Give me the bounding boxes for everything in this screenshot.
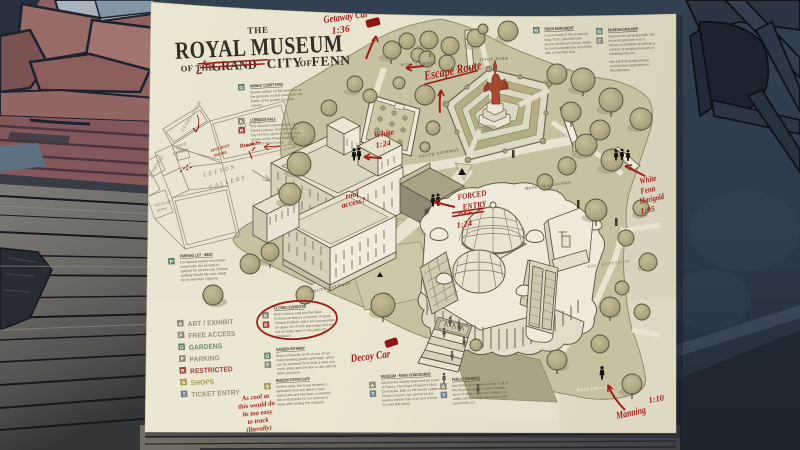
svg-text:A: A: [239, 119, 243, 125]
svg-text:T: T: [442, 393, 445, 399]
svg-text:G: G: [239, 85, 243, 91]
svg-text:R: R: [240, 128, 244, 134]
svg-text:F: F: [598, 39, 601, 45]
svg-text:A: A: [441, 384, 445, 390]
svg-text:T: T: [182, 392, 185, 398]
svg-text:CITY: CITY: [266, 55, 303, 72]
svg-text:G: G: [597, 29, 601, 35]
svg-text:T: T: [371, 392, 374, 398]
svg-text:FENN: FENN: [311, 52, 351, 69]
svg-text:crowds.: crowds.: [251, 103, 263, 108]
svg-text:R: R: [264, 323, 268, 329]
svg-text:F: F: [179, 333, 182, 339]
svg-text:G: G: [180, 345, 184, 351]
svg-text:SHOPS: SHOPS: [191, 379, 215, 388]
svg-text:A: A: [371, 383, 375, 389]
svg-text:A: A: [264, 313, 268, 319]
svg-text:R: R: [181, 368, 185, 374]
svg-text:F: F: [266, 363, 269, 369]
svg-text:PARKING: PARKING: [189, 355, 220, 364]
svg-text:G: G: [265, 354, 269, 360]
svg-text:A: A: [178, 321, 182, 327]
svg-text:G: G: [534, 28, 538, 34]
